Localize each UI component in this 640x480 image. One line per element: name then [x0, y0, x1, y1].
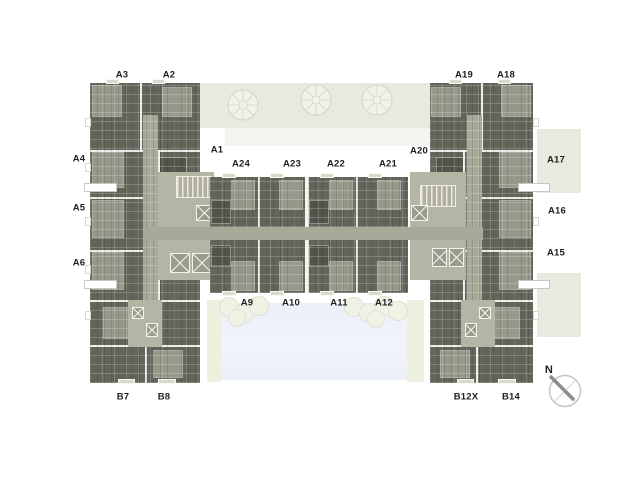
- landscape-strip-top: [225, 128, 430, 146]
- terrace-tab: [270, 173, 284, 178]
- unit-label-a1: A1: [211, 145, 224, 156]
- compass-north-label: N: [545, 364, 553, 376]
- unit-label-a10: A10: [282, 298, 300, 309]
- terrace-tab: [158, 379, 176, 384]
- terrace-tab: [457, 379, 474, 384]
- center-units-bottom-row: [210, 240, 408, 293]
- pool-deck-left: [207, 300, 221, 382]
- room: [432, 88, 460, 116]
- elevator-icon: [479, 307, 491, 319]
- staircase-left: [176, 176, 212, 198]
- room: [441, 351, 469, 377]
- room: [93, 86, 121, 116]
- terrace-tab: [368, 173, 382, 178]
- terrace-tab: [368, 291, 382, 296]
- elevator-icon: [132, 307, 144, 319]
- elevator-icon: [411, 205, 428, 221]
- room: [330, 181, 352, 209]
- room: [93, 201, 123, 237]
- room: [212, 246, 230, 266]
- window-bump: [533, 217, 539, 226]
- unit-label-a5: A5: [73, 203, 86, 214]
- elevator-icon: [432, 248, 447, 267]
- wall-line: [258, 240, 260, 293]
- vertical-corridor-right: [467, 115, 482, 305]
- terrace-tab: [320, 291, 334, 296]
- wall-line: [356, 240, 358, 293]
- room: [500, 201, 530, 237]
- unit-label-a24: A24: [232, 159, 250, 170]
- terrace-tab: [222, 173, 236, 178]
- room: [330, 262, 352, 290]
- unit-label-b8: B8: [158, 392, 171, 403]
- unit-label-a11: A11: [330, 298, 348, 309]
- wall-line: [258, 177, 260, 227]
- unit-label-a16: A16: [548, 206, 566, 217]
- unit-label-b7: B7: [117, 392, 130, 403]
- unit-label-a2: A2: [163, 70, 176, 81]
- unit-label-b12x: B12X: [454, 392, 479, 403]
- compass-icon: [546, 372, 584, 410]
- wall-line: [305, 240, 309, 293]
- vertical-corridor-left: [143, 115, 158, 305]
- elevator-icon: [192, 253, 212, 273]
- floor-plan-canvas: A3 A2 A19 A18 A4 A5 A6 A17 A16 A15 A1 A2…: [0, 0, 640, 480]
- unit-label-a12: A12: [375, 298, 393, 309]
- window-bump: [533, 311, 539, 320]
- room: [163, 88, 191, 116]
- bush-icon: [367, 310, 385, 328]
- room: [310, 246, 328, 266]
- room: [378, 181, 400, 209]
- unit-label-a18: A18: [497, 70, 515, 81]
- balcony-tab: [84, 280, 117, 289]
- window-bump: [85, 311, 91, 320]
- terrace-tab: [498, 379, 516, 384]
- balcony-tab: [518, 280, 550, 289]
- elevator-icon: [449, 248, 464, 267]
- room: [310, 201, 328, 223]
- room: [232, 181, 254, 209]
- elevator-icon: [465, 323, 477, 337]
- balcony-tab: [84, 183, 117, 192]
- room: [212, 201, 230, 223]
- tree-icon: [360, 83, 394, 117]
- unit-label-a4: A4: [73, 154, 86, 165]
- wall-line: [305, 177, 309, 227]
- room: [378, 262, 400, 290]
- unit-label-a3: A3: [116, 70, 129, 81]
- staircase-right: [420, 185, 456, 207]
- elevator-icon: [170, 253, 190, 273]
- unit-label-a15: A15: [547, 248, 565, 259]
- unit-label-a22: A22: [327, 159, 345, 170]
- window-bump: [85, 163, 91, 172]
- unit-label-a20: A20: [410, 146, 428, 157]
- room: [280, 181, 302, 209]
- center-units-top-row: [210, 177, 408, 227]
- room: [93, 153, 123, 187]
- window-bump: [85, 265, 91, 274]
- unit-label-a17: A17: [547, 155, 565, 166]
- room: [232, 262, 254, 290]
- terrace-tab: [270, 291, 284, 296]
- window-bump: [85, 217, 91, 226]
- pool-deck-right: [407, 300, 424, 382]
- unit-label-a23: A23: [283, 159, 301, 170]
- wall-line: [356, 177, 358, 227]
- tree-icon: [226, 88, 260, 122]
- balcony-tab: [518, 183, 550, 192]
- elevator-icon: [146, 323, 158, 337]
- unit-label-a6: A6: [73, 258, 86, 269]
- room: [491, 308, 519, 338]
- unit-label-a9: A9: [241, 298, 254, 309]
- room: [500, 153, 530, 187]
- terrace-tab: [118, 379, 135, 384]
- room: [502, 86, 530, 116]
- window-bump: [85, 118, 91, 127]
- room: [280, 262, 302, 290]
- unit-label-a19: A19: [455, 70, 473, 81]
- terrace-tab: [222, 291, 236, 296]
- tree-icon: [299, 83, 333, 117]
- unit-label-b14: B14: [502, 392, 520, 403]
- bush-icon: [228, 309, 246, 327]
- wall-line: [140, 83, 142, 150]
- window-bump: [533, 118, 539, 127]
- unit-label-a21: A21: [379, 159, 397, 170]
- terrace-tab: [320, 173, 334, 178]
- main-corridor: [143, 227, 483, 240]
- room: [154, 351, 182, 377]
